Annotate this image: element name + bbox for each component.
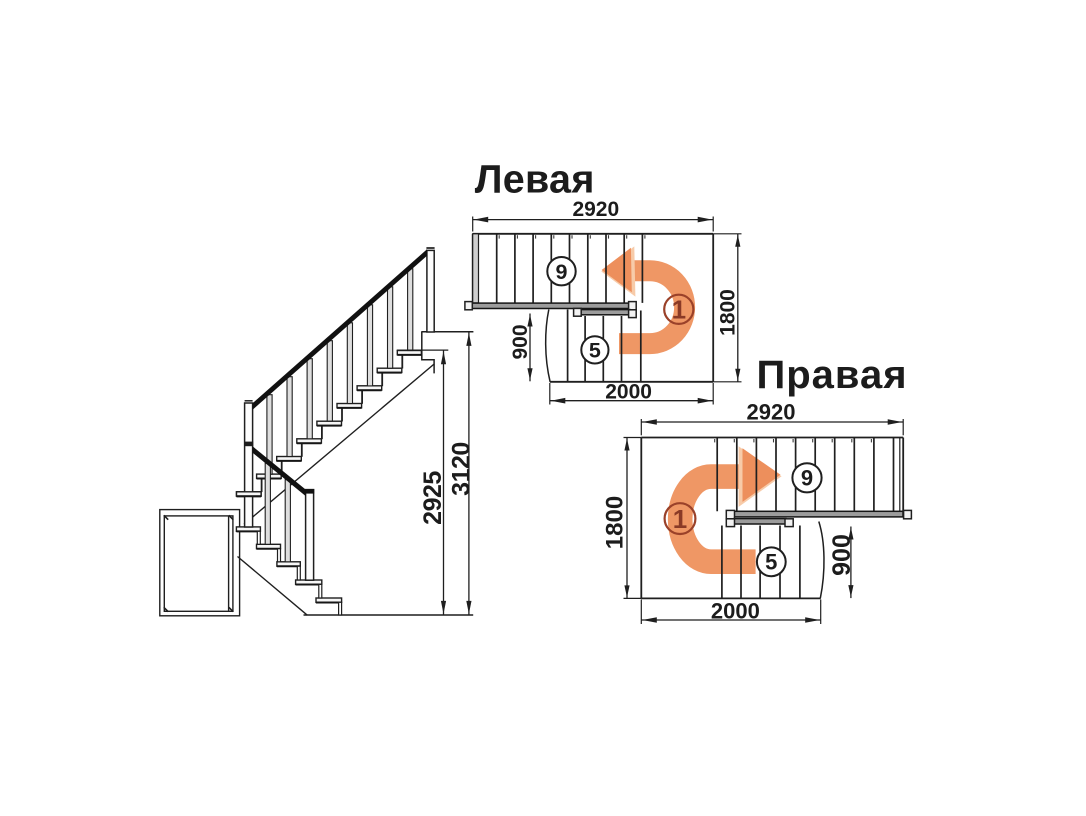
svg-text:5: 5 [589,339,601,363]
svg-text:2000: 2000 [605,381,652,404]
svg-text:900: 900 [828,534,856,576]
svg-text:Правая: Правая [756,353,907,397]
svg-text:2925: 2925 [419,471,447,525]
svg-text:2920: 2920 [747,399,796,424]
svg-text:900: 900 [509,324,532,359]
svg-text:1: 1 [672,295,686,325]
svg-text:9: 9 [801,466,813,491]
svg-text:3120: 3120 [447,442,475,496]
svg-text:1800: 1800 [602,496,629,549]
svg-text:9: 9 [556,260,568,284]
svg-text:1: 1 [673,504,687,534]
svg-text:2000: 2000 [711,598,760,623]
svg-text:2920: 2920 [572,198,619,221]
svg-text:5: 5 [765,550,777,575]
svg-text:1800: 1800 [717,289,740,336]
svg-text:Левая: Левая [475,157,595,201]
